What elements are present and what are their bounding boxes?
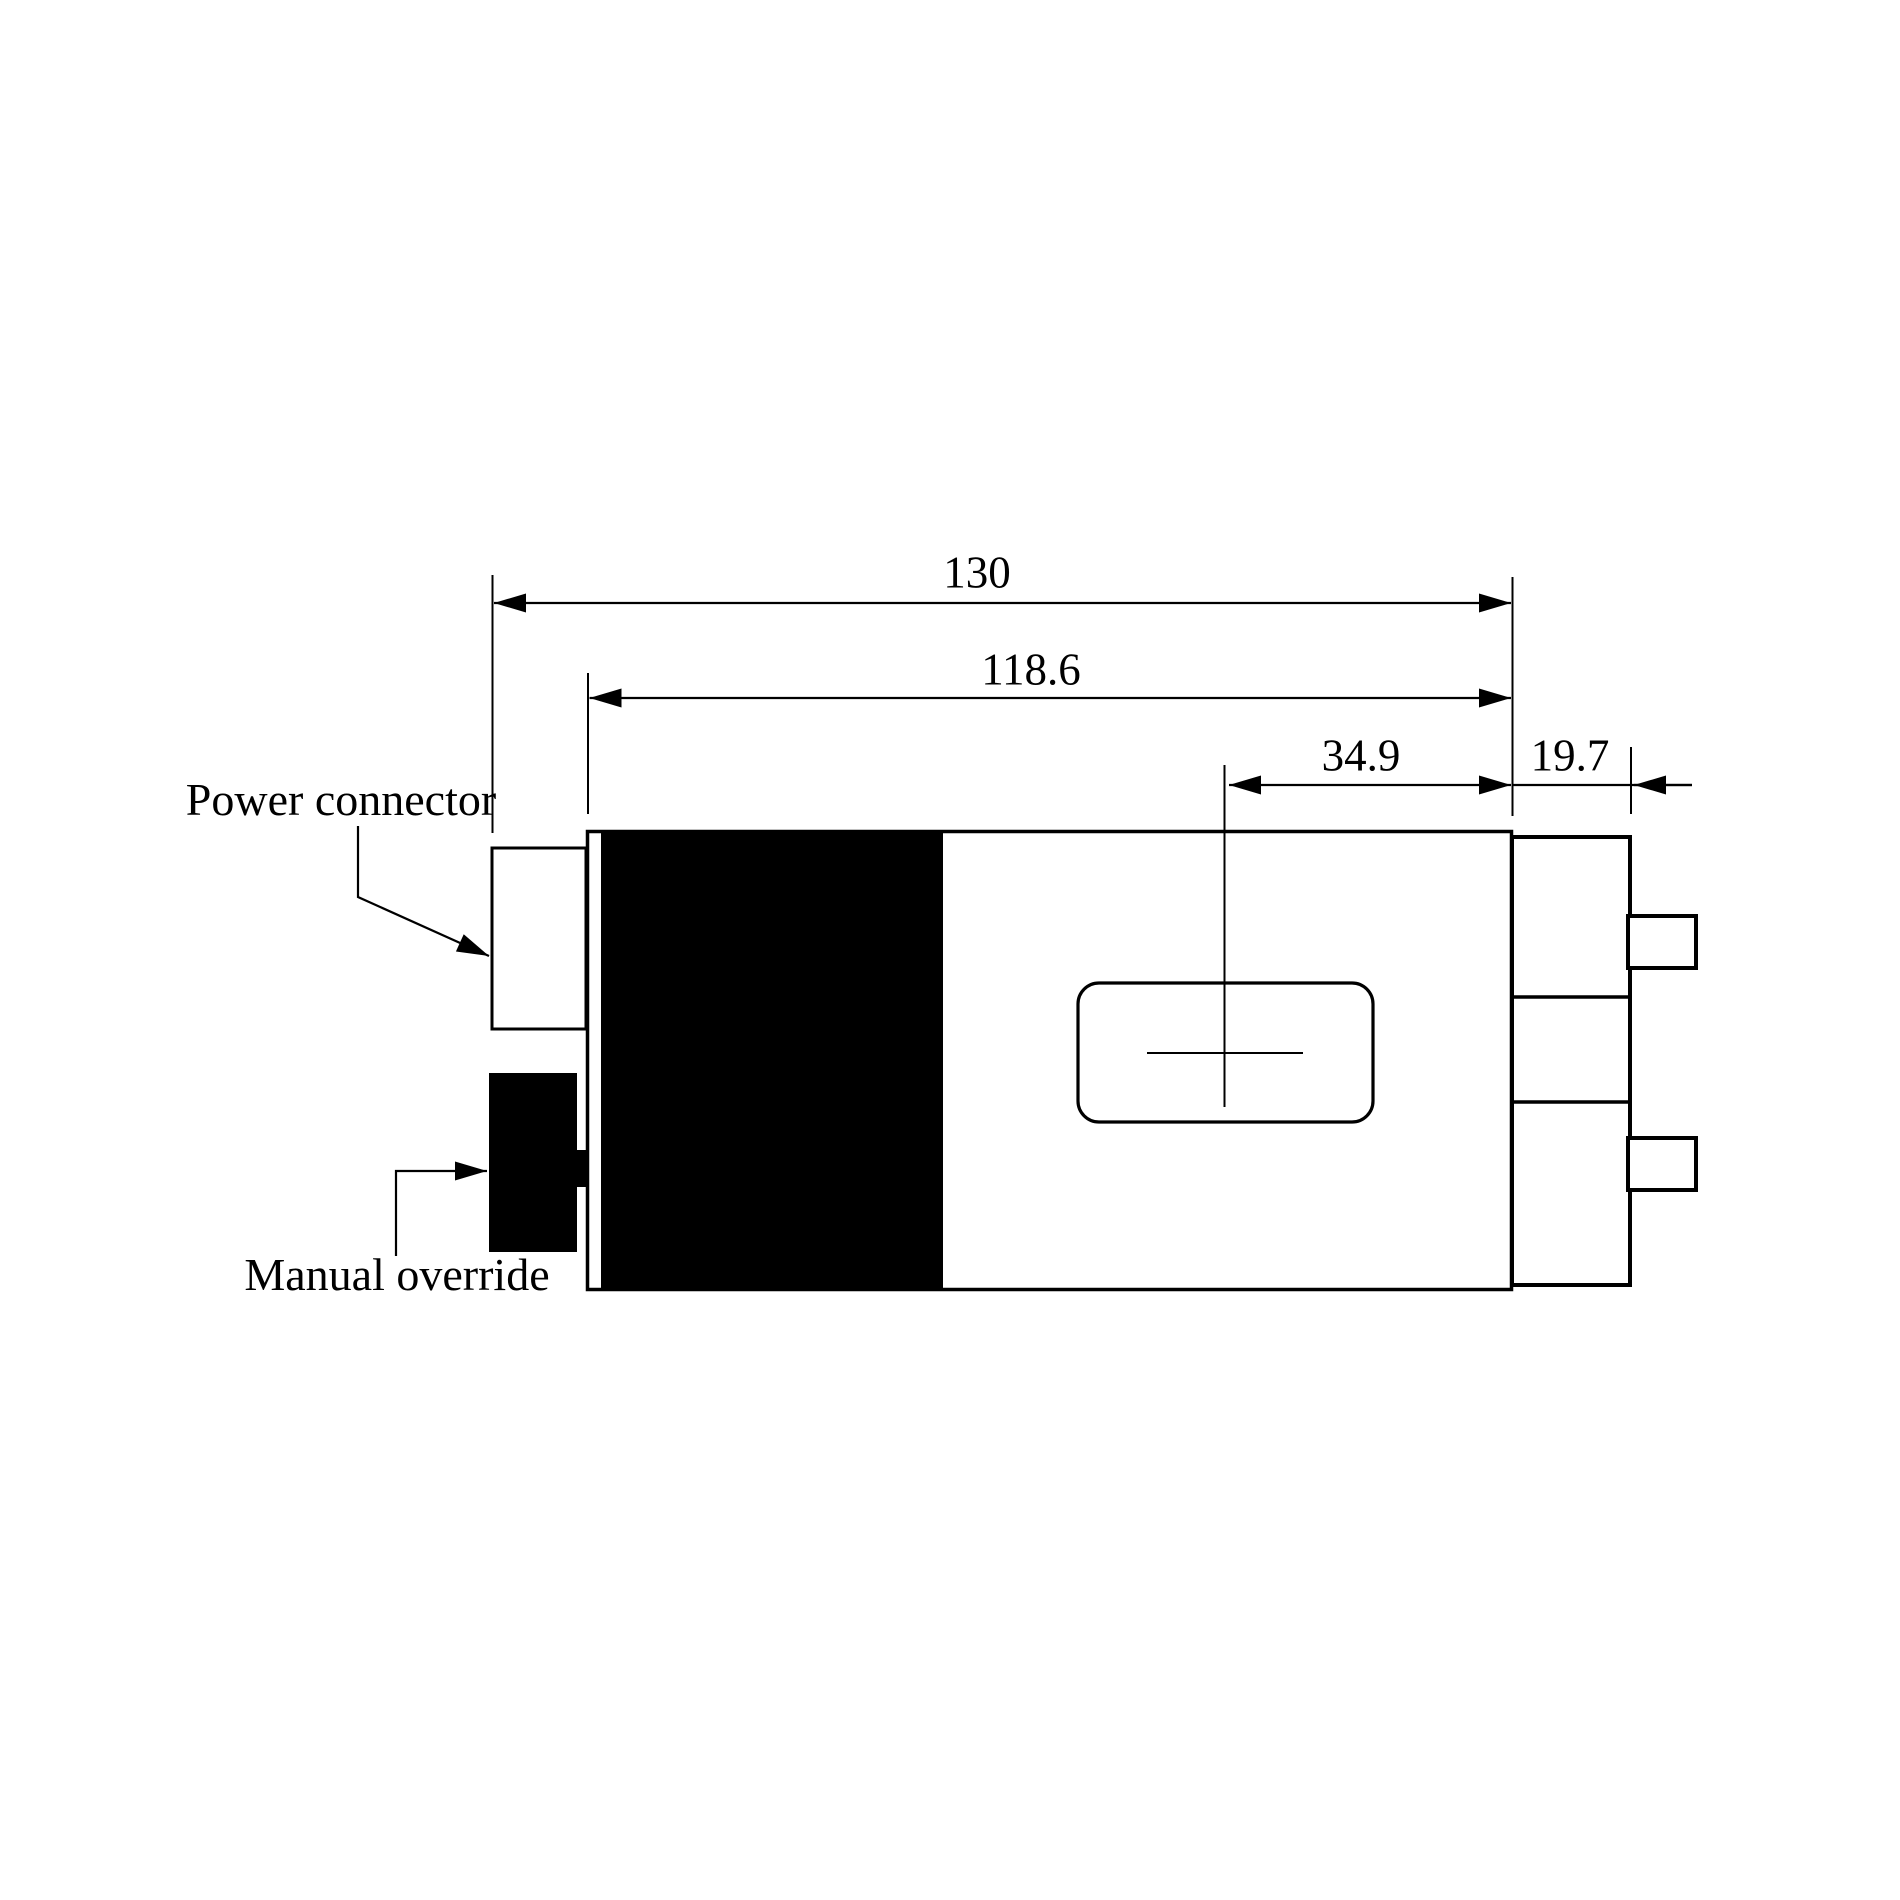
manual-override-knob xyxy=(489,1073,577,1252)
dim-body-length-value: 118.6 xyxy=(981,648,1081,693)
actuator-dimension-drawing xyxy=(0,0,1900,1900)
technical-drawing-canvas: 130 118.6 34.9 19.7 Power connector Manu… xyxy=(0,0,1900,1900)
port-nub-bottom xyxy=(1628,1138,1696,1190)
dim-overall-length-value: 130 xyxy=(943,551,1011,596)
power-connector-box xyxy=(492,848,586,1029)
power-connector-label: Power connector xyxy=(186,777,496,823)
manual-override-label: Manual override xyxy=(244,1252,549,1298)
motor-section xyxy=(601,832,943,1289)
rear-cap xyxy=(1512,837,1630,1285)
dim-window-offset-value: 34.9 xyxy=(1322,734,1401,779)
dim-rear-section-value: 19.7 xyxy=(1531,734,1610,779)
manual-override-leader-line xyxy=(396,1171,487,1256)
power-connector-leader-line xyxy=(358,826,489,956)
manual-override-stem xyxy=(577,1150,588,1187)
port-nub-top xyxy=(1628,916,1696,968)
